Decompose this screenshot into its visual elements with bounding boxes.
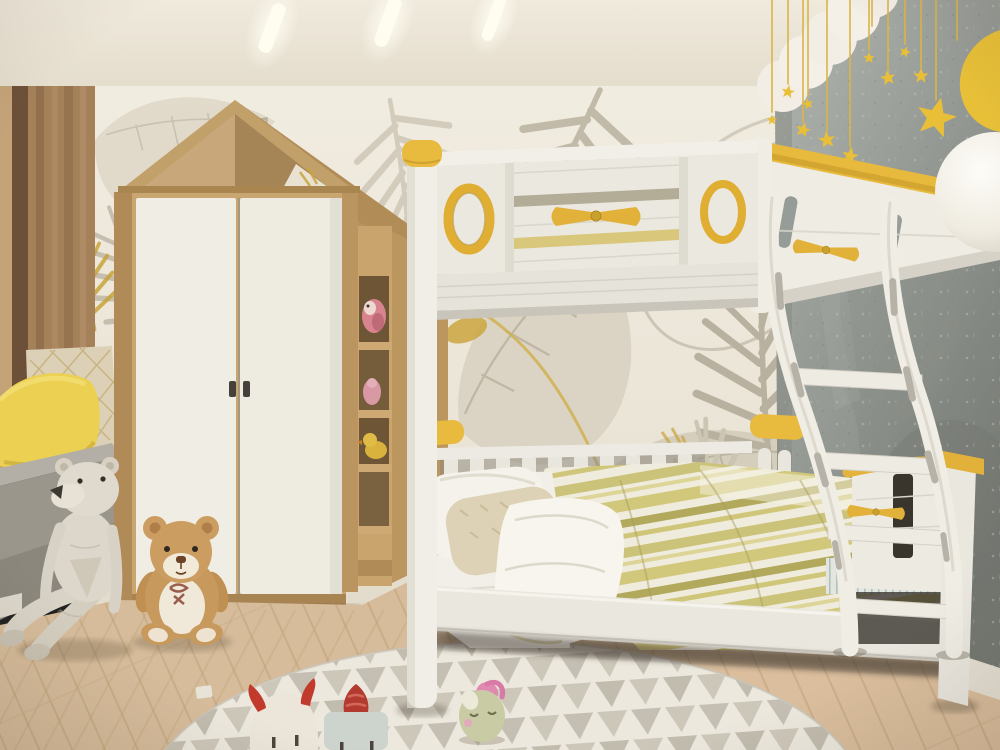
vignette	[0, 0, 1000, 750]
kids-bedroom-render: Cream ceiling with recessed diagonal LED…	[0, 0, 1000, 750]
scene-canvas: Cream ceiling with recessed diagonal LED…	[0, 0, 1000, 750]
